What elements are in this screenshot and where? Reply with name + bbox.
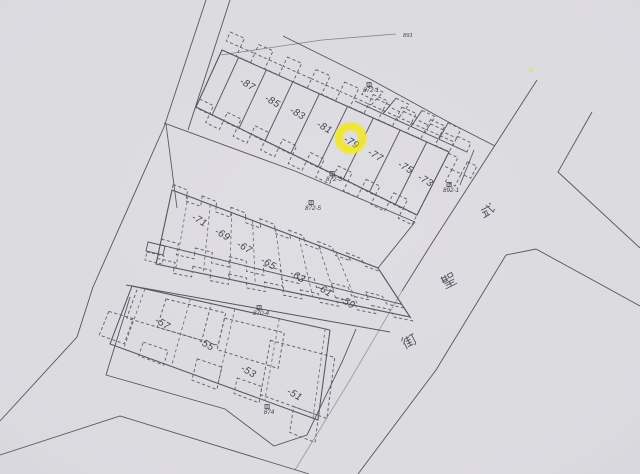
svg-text:891: 891 <box>403 33 413 39</box>
svg-text:870-4: 870-4 <box>253 310 270 317</box>
svg-text:892-1: 892-1 <box>443 187 459 194</box>
svg-text:872-1: 872-1 <box>363 87 379 94</box>
svg-text:872-5: 872-5 <box>305 205 322 212</box>
svg-text:874: 874 <box>264 409 275 416</box>
svg-text:872-3: 872-3 <box>326 176 343 183</box>
